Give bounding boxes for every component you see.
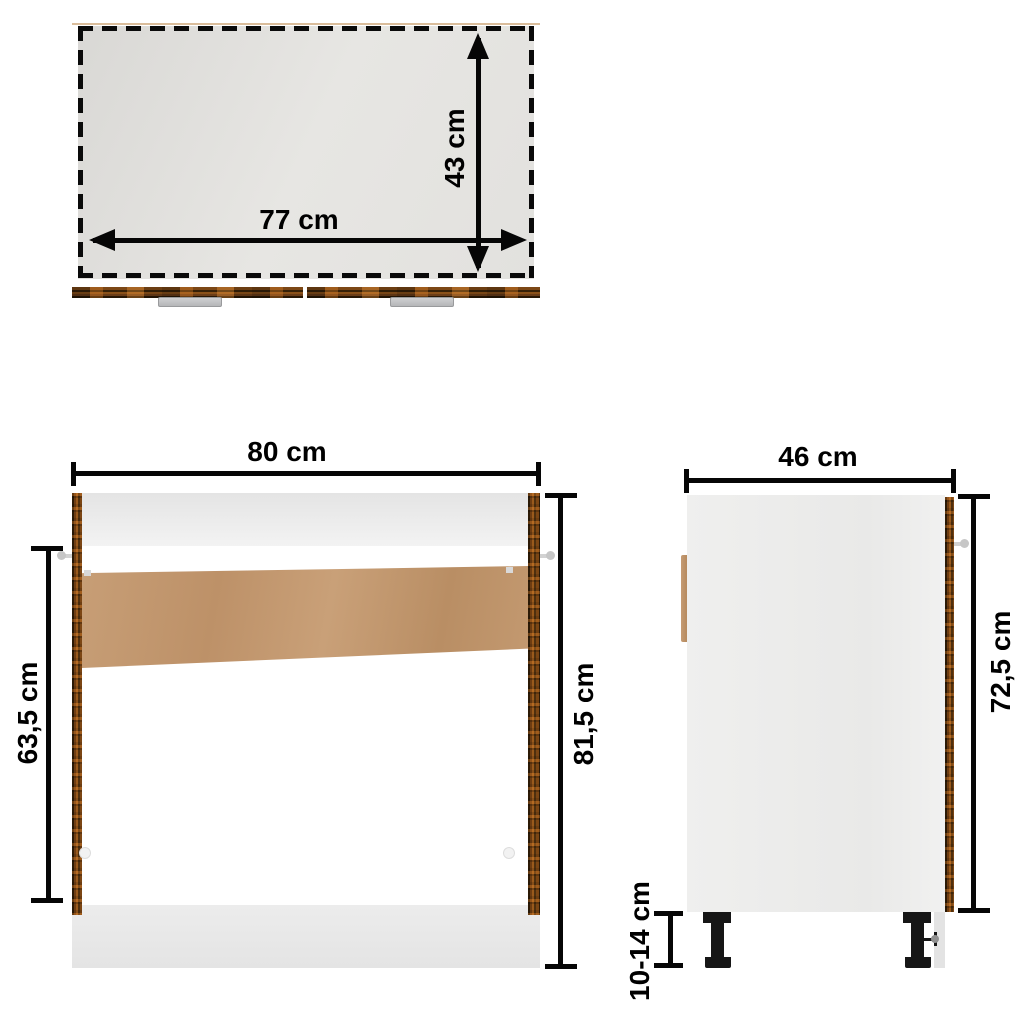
top-rail (82, 493, 528, 546)
dim-front-height-tick-bottom (545, 964, 577, 969)
screw-cap-right (503, 847, 515, 859)
door-handle-right (390, 297, 454, 307)
dim-front-width-tick-right (536, 462, 541, 486)
back-panel (82, 566, 528, 668)
dim-front-opening-tick-bottom (31, 898, 63, 903)
dim-legs-height-line (668, 913, 673, 967)
arrowhead-up (467, 33, 489, 59)
dim-front-width-tick-left (71, 462, 76, 486)
dim-front-height-tick-top (545, 493, 577, 498)
side-view: 46 cm 72,5 cm 10-14 cm (600, 430, 1024, 1024)
top-view: 77 cm 43 cm (0, 0, 600, 330)
dashed-border-top (78, 26, 534, 31)
arrowhead-right (501, 229, 527, 251)
dim-side-depth-tick-left (684, 469, 689, 493)
dim-side-depth-tick-right (951, 469, 956, 493)
leg-adjuster-screw-disc (931, 935, 939, 943)
leg-front-stem (711, 923, 724, 959)
arrowhead-left (89, 229, 115, 251)
leg-front-cap (703, 912, 731, 923)
door-handle-left (158, 297, 222, 307)
screw-cap-left (79, 847, 91, 859)
dim-top-width-label: 77 cm (259, 206, 338, 234)
dim-front-width-line (73, 471, 538, 476)
corner-bracket-right (506, 567, 513, 573)
dim-side-height-tick-bottom (958, 908, 990, 913)
dim-top-depth-label: 43 cm (441, 108, 469, 187)
side-body (687, 495, 945, 912)
dim-side-height-label: 72,5 cm (987, 611, 1015, 714)
product-dimension-diagram: 77 cm 43 cm 80 cm 81,5 cm (0, 0, 1024, 1024)
dim-front-opening-label: 63,5 cm (14, 662, 42, 765)
cam-pin-side (960, 539, 969, 548)
dim-top-depth-line (476, 38, 481, 268)
dim-front-height-label: 81,5 cm (570, 663, 598, 766)
dashed-border-right (529, 26, 534, 278)
corner-bracket-left (84, 570, 91, 576)
dim-legs-height-tick-bottom (654, 963, 683, 968)
dim-side-depth-line (686, 478, 953, 483)
dim-front-opening-line (46, 548, 51, 902)
leg-back-stem (911, 923, 924, 959)
cam-pin-left (57, 551, 66, 560)
dim-front-opening-tick-top (31, 546, 63, 551)
dim-front-height-line (558, 495, 563, 968)
leg-back-foot (905, 957, 931, 968)
front-view: 80 cm 81,5 cm 63,5 cm (0, 430, 620, 1024)
dashed-border-left (78, 26, 83, 278)
side-panel-right (528, 493, 540, 915)
arrowhead-down (467, 246, 489, 272)
dim-legs-height-label: 10-14 cm (626, 881, 654, 1001)
door-edge-strip (945, 497, 954, 912)
leg-front-foot (705, 957, 731, 968)
countertop-back-edge (72, 23, 540, 25)
dashed-border-bottom (78, 273, 534, 278)
dim-side-height-tick-top (958, 494, 990, 499)
dim-side-depth-label: 46 cm (778, 443, 857, 471)
dim-legs-height-tick-top (654, 911, 683, 916)
dim-top-width-line (93, 238, 520, 243)
bottom-plinth (72, 905, 540, 968)
dim-side-height-line (971, 496, 976, 912)
dim-front-width-label: 80 cm (247, 438, 326, 466)
handle-side-profile (681, 555, 687, 642)
cam-pin-right (546, 551, 555, 560)
leg-back-cap (903, 912, 931, 923)
